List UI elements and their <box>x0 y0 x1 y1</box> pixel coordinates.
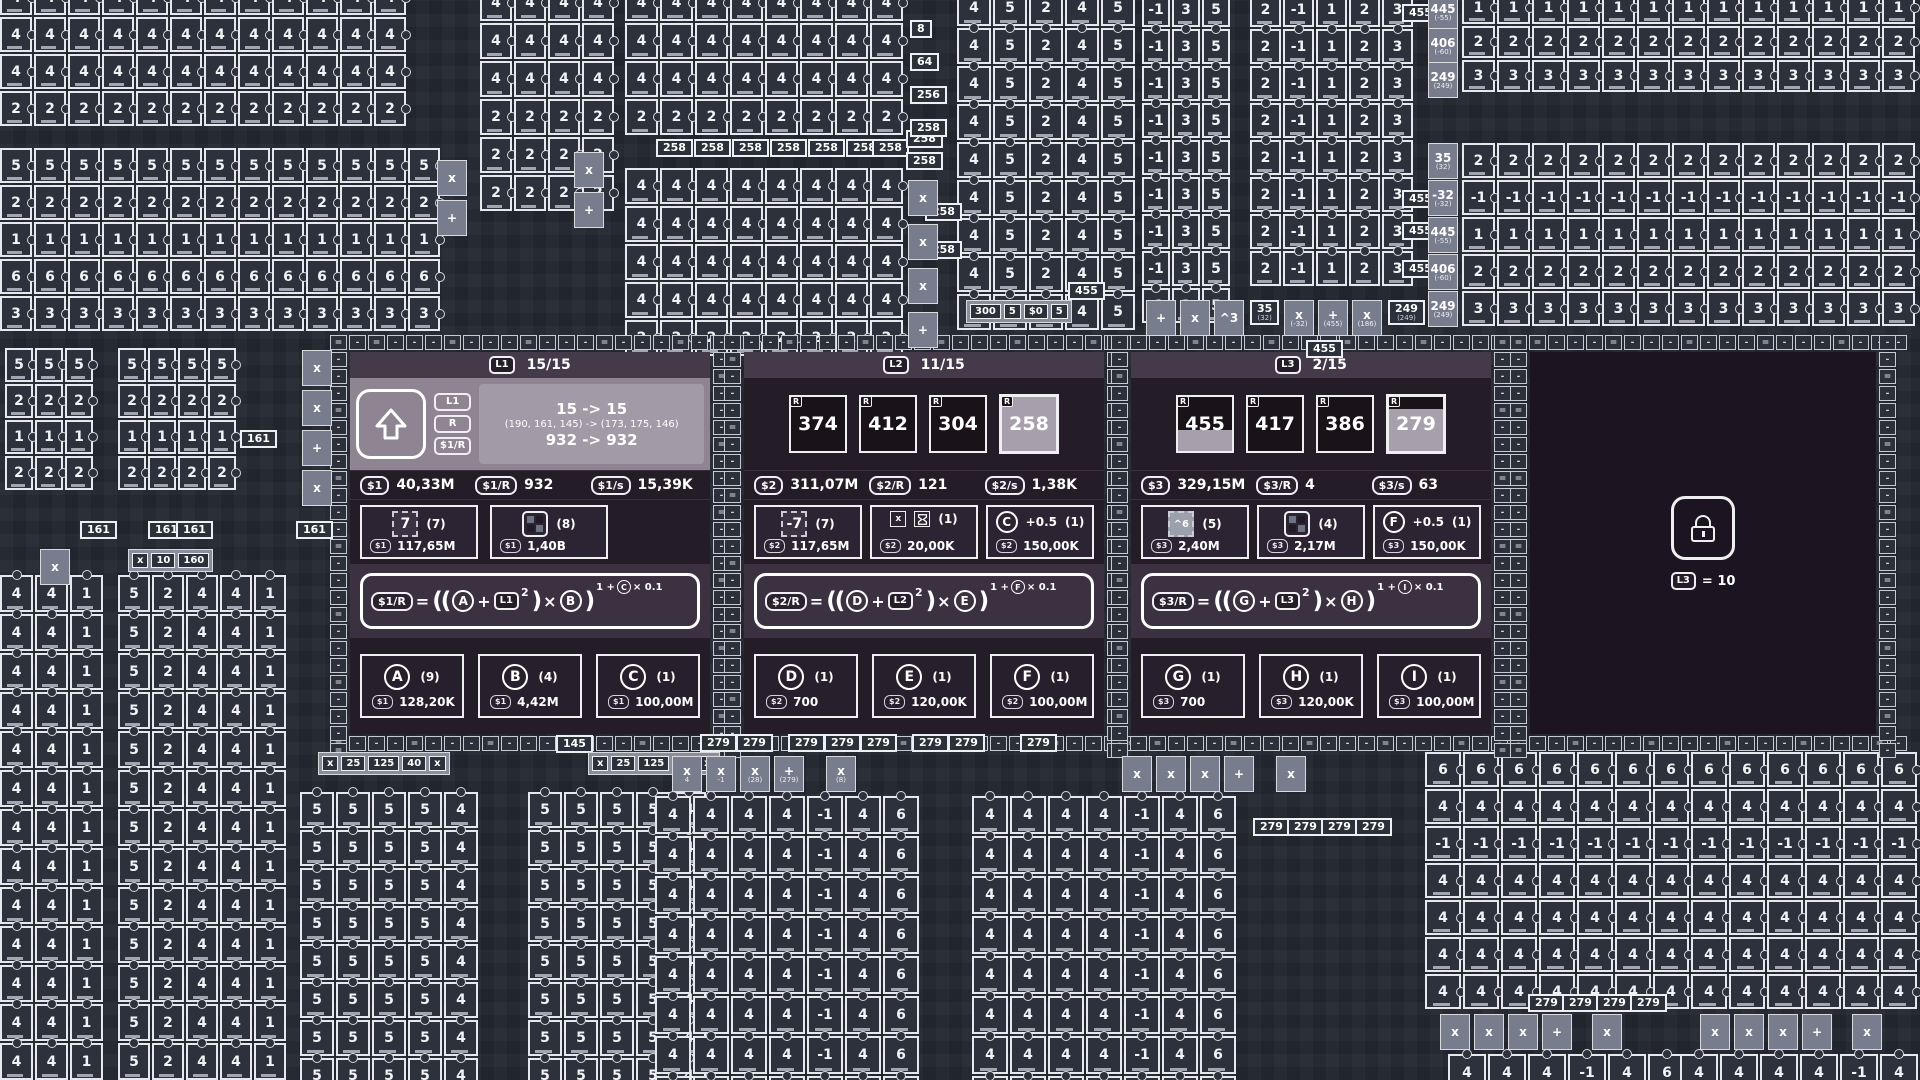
value-chip[interactable]: 279 <box>788 734 825 752</box>
grid-cell[interactable]: 4 <box>102 17 134 52</box>
grid-cell[interactable]: 4 <box>186 926 218 963</box>
grid-cell[interactable]: 3 <box>1602 60 1635 92</box>
grid-cell[interactable]: -1 <box>1283 251 1314 286</box>
grid-cell[interactable]: 2 <box>1742 143 1775 178</box>
grid-cell[interactable]: 4 <box>1086 996 1122 1034</box>
buy-cell-upgrade-button[interactable]: -7 (7) $2 117,65M <box>754 505 862 559</box>
operator-chip[interactable]: + <box>437 200 467 236</box>
grid-cell[interactable]: 4 <box>845 836 881 874</box>
grid-cell[interactable]: 5 <box>528 792 562 828</box>
grid-cell[interactable]: 2 <box>1707 143 1740 178</box>
grid-cell[interactable]: 4 <box>1010 836 1046 874</box>
grid-cell[interactable]: 1 <box>272 222 304 257</box>
grid-cell[interactable]: 2 <box>65 456 93 490</box>
operator-chip[interactable]: x <box>302 390 332 426</box>
grid-cell[interactable]: 4 <box>35 1043 68 1080</box>
grid-cell[interactable]: 1 <box>1707 0 1740 24</box>
grid-cell[interactable]: 3 <box>1777 291 1810 326</box>
grid-cell[interactable]: 5 <box>118 926 150 963</box>
grid-cell[interactable]: 4 <box>238 17 270 52</box>
grid-cell[interactable]: 5 <box>118 348 146 382</box>
grid-cell[interactable]: 4 <box>1065 28 1099 64</box>
grid-cell[interactable]: 2 <box>660 99 693 135</box>
grid-cell[interactable]: 5 <box>118 692 150 729</box>
grid-cell[interactable]: 4 <box>655 1076 691 1080</box>
grid-cell[interactable]: 2 <box>118 456 146 490</box>
grid-cell[interactable]: 4 <box>272 0 304 15</box>
grid-cell[interactable]: -1 <box>1847 180 1880 215</box>
grid-cell[interactable]: -1 <box>1283 29 1314 64</box>
grid-cell[interactable]: 1 <box>68 222 100 257</box>
grid-cell[interactable]: 5 <box>374 148 406 183</box>
grid-cell[interactable]: 1 <box>1316 214 1347 249</box>
grid-cell[interactable]: 4 <box>0 887 33 924</box>
grid-cell[interactable]: 5 <box>118 770 150 807</box>
grid-cell[interactable]: 5 <box>336 830 370 866</box>
grid-cell[interactable]: 5 <box>1101 28 1135 64</box>
grid-cell[interactable]: 4 <box>972 1036 1008 1074</box>
grid-cell[interactable]: 1 <box>70 1043 103 1080</box>
grid-cell[interactable]: 5 <box>238 148 270 183</box>
grid-cell[interactable]: 5 <box>1202 29 1230 64</box>
grid-cell[interactable]: 2 <box>152 692 184 729</box>
value-chip[interactable]: 161 <box>176 521 213 539</box>
grid-cell[interactable]: 4 <box>204 0 236 15</box>
grid-cell[interactable]: 5 <box>65 348 93 382</box>
r-cell[interactable]: R 412 <box>859 395 917 453</box>
value-chip[interactable]: 258 <box>732 139 769 157</box>
grid-cell[interactable]: 4 <box>769 796 805 834</box>
grid-cell[interactable]: 4 <box>1760 1054 1798 1080</box>
grid-cell[interactable]: 3 <box>1637 291 1670 326</box>
grid-cell[interactable]: 2 <box>1847 254 1880 289</box>
grid-cell[interactable]: 4 <box>835 244 868 280</box>
grid-cell[interactable]: 4 <box>220 614 252 651</box>
grid-cell[interactable]: 3 <box>102 296 134 331</box>
grid-cell[interactable]: 4 <box>660 61 693 97</box>
grid-cell[interactable]: 5 <box>1202 251 1230 286</box>
grid-cell[interactable]: 5 <box>600 906 634 942</box>
operator-chip[interactable]: + <box>302 430 332 466</box>
value-chip[interactable]: 258 <box>910 119 947 137</box>
operator-chip[interactable]: x <box>302 350 332 386</box>
grid-cell[interactable]: 4 <box>136 0 168 15</box>
grid-cell[interactable]: 1 <box>254 926 286 963</box>
grid-cell[interactable]: 2 <box>208 456 236 490</box>
grid-cell[interactable]: 5 <box>528 944 562 980</box>
grid-cell[interactable]: 4 <box>1767 863 1803 898</box>
operator-chip[interactable]: x <box>1474 1014 1504 1050</box>
grid-cell[interactable]: 4 <box>730 206 763 242</box>
value-chip[interactable]: 258 <box>694 139 731 157</box>
grid-cell[interactable]: 4 <box>68 54 100 89</box>
grid-cell[interactable]: 2 <box>1029 28 1063 64</box>
grid-cell[interactable]: 6 <box>1200 1036 1236 1074</box>
grid-cell[interactable]: 1 <box>254 575 286 612</box>
grid-cell[interactable]: 1 <box>1707 217 1740 252</box>
grid-cell[interactable]: -1 <box>1777 180 1810 215</box>
operator-chip[interactable]: x <box>1440 1014 1470 1050</box>
grid-cell[interactable]: 2 <box>0 185 32 220</box>
grid-cell[interactable]: 4 <box>695 0 728 21</box>
grid-cell[interactable]: 4 <box>625 61 658 97</box>
grid-cell[interactable]: -1 <box>1124 836 1160 874</box>
grid-cell[interactable]: 3 <box>1532 60 1565 92</box>
value-chip[interactable]: 64 <box>910 53 939 71</box>
grid-cell[interactable]: 5 <box>993 142 1027 178</box>
grid-cell[interactable]: 4 <box>0 614 33 651</box>
grid-cell[interactable]: 2 <box>1497 143 1530 178</box>
grid-cell[interactable]: 1 <box>70 809 103 846</box>
grid-cell[interactable]: 2 <box>835 99 868 135</box>
grid-cell[interactable]: 3 <box>1172 66 1200 101</box>
grid-cell[interactable]: 4 <box>0 770 33 807</box>
grid-cell[interactable]: 1 <box>254 1043 286 1080</box>
grid-cell[interactable]: -1 <box>1672 180 1705 215</box>
grid-cell[interactable]: 2 <box>1637 143 1670 178</box>
buy-letter-boost-button[interactable]: F +0.5 (1) $3 150,00K <box>1373 505 1481 559</box>
grid-cell[interactable]: 2 <box>1029 256 1063 292</box>
grid-cell[interactable]: -1 <box>1283 214 1314 249</box>
value-chip[interactable]: 279 <box>1528 994 1565 1012</box>
grid-cell[interactable]: -1 <box>1124 996 1160 1034</box>
grid-cell[interactable]: -1 <box>1637 180 1670 215</box>
grid-cell[interactable]: 4 <box>340 54 372 89</box>
grid-cell[interactable]: -1 <box>1568 1054 1606 1080</box>
grid-cell[interactable]: 3 <box>1462 291 1495 326</box>
grid-cell[interactable]: -1 <box>1142 29 1170 64</box>
grid-cell[interactable]: 5 <box>408 906 442 942</box>
grid-cell[interactable]: 4 <box>800 0 833 21</box>
operator-chip[interactable]: + <box>1542 1014 1572 1050</box>
grid-cell[interactable]: 5 <box>336 1058 370 1080</box>
grid-cell[interactable]: 5 <box>1101 142 1135 178</box>
grid-cell[interactable]: 5 <box>372 1020 406 1056</box>
grid-cell[interactable]: 4 <box>835 282 868 318</box>
grid-cell[interactable]: 5 <box>600 982 634 1018</box>
grid-cell[interactable]: 2 <box>870 99 903 135</box>
grid-cell[interactable]: 2 <box>548 99 580 135</box>
grid-cell[interactable]: 4 <box>731 1076 767 1080</box>
grid-cell[interactable]: 5 <box>600 830 634 866</box>
grid-cell[interactable]: 4 <box>655 836 691 874</box>
grid-cell[interactable]: 4 <box>186 848 218 885</box>
grid-cell[interactable]: 5 <box>118 575 150 612</box>
grid-cell[interactable]: 5 <box>564 944 598 980</box>
grid-cell[interactable]: 4 <box>1048 916 1084 954</box>
grid-cell[interactable]: 4 <box>0 17 32 52</box>
grid-cell[interactable]: 5 <box>564 1058 598 1080</box>
value-chip[interactable]: 8 <box>910 20 932 38</box>
grid-cell[interactable]: 1 <box>254 809 286 846</box>
grid-cell[interactable]: 4 <box>1065 104 1099 140</box>
grid-cell[interactable]: 4 <box>186 614 218 651</box>
grid-cell[interactable]: 1 <box>1742 0 1775 24</box>
grid-cell[interactable]: 2 <box>118 384 146 418</box>
grid-cell[interactable]: 1 <box>70 1004 103 1041</box>
grid-cell[interactable]: 2 <box>1777 26 1810 58</box>
machine-chip-bar[interactable]: x2512540x <box>318 752 450 775</box>
operator-chip[interactable]: 406(-60) <box>1428 28 1458 64</box>
grid-cell[interactable]: 4 <box>730 61 763 97</box>
grid-cell[interactable]: 5 <box>564 830 598 866</box>
value-chip[interactable]: 258 <box>906 152 943 170</box>
grid-cell[interactable]: 4 <box>480 23 512 59</box>
grid-cell[interactable]: 4 <box>660 168 693 204</box>
grid-cell[interactable]: 3 <box>170 296 202 331</box>
grid-cell[interactable]: 4 <box>870 244 903 280</box>
grid-cell[interactable]: -1 <box>807 1076 843 1080</box>
grid-cell[interactable]: 4 <box>1805 863 1841 898</box>
letter-i-upgrade-button[interactable]: I (1) $3 100,00M <box>1377 654 1481 718</box>
grid-cell[interactable]: 6 <box>68 259 100 294</box>
grid-cell[interactable]: 5 <box>1202 66 1230 101</box>
value-chip[interactable]: 279 <box>1020 734 1057 752</box>
grid-cell[interactable]: 4 <box>695 168 728 204</box>
grid-cell[interactable]: 2 <box>480 137 512 173</box>
grid-cell[interactable]: 1 <box>70 731 103 768</box>
grid-cell[interactable]: 4 <box>1162 1076 1198 1080</box>
grid-cell[interactable]: 4 <box>34 0 66 15</box>
grid-cell[interactable]: 4 <box>660 282 693 318</box>
grid-cell[interactable]: 2 <box>1567 254 1600 289</box>
grid-cell[interactable]: 5 <box>336 982 370 1018</box>
buy-cell-upgrade-button[interactable]: 7 (7) $1 117,65M <box>360 505 478 559</box>
r-cell-selected[interactable]: R 279 <box>1386 394 1446 454</box>
grid-cell[interactable]: 3 <box>374 296 406 331</box>
grid-cell[interactable]: 4 <box>1162 956 1198 994</box>
operator-chip[interactable]: x <box>1734 1014 1764 1050</box>
grid-cell[interactable]: 2 <box>152 926 184 963</box>
grid-cell[interactable]: -1 <box>807 916 843 954</box>
grid-cell[interactable]: 3 <box>1382 66 1413 101</box>
grid-cell[interactable]: 5 <box>372 792 406 828</box>
grid-cell[interactable]: 4 <box>220 809 252 846</box>
grid-cell[interactable]: 4 <box>845 1036 881 1074</box>
grid-cell[interactable]: 4 <box>186 887 218 924</box>
grid-cell[interactable]: 4 <box>0 1043 33 1080</box>
grid-cell[interactable]: 4 <box>730 168 763 204</box>
grid-cell[interactable]: 4 <box>186 809 218 846</box>
grid-cell[interactable]: 2 <box>1707 26 1740 58</box>
grid-cell[interactable]: 1 <box>148 420 176 454</box>
grid-cell[interactable]: 2 <box>1742 26 1775 58</box>
r-cell[interactable]: R 304 <box>929 395 987 453</box>
grid-cell[interactable]: 1 <box>1316 0 1347 27</box>
grid-cell[interactable]: 4 <box>0 653 33 690</box>
grid-cell[interactable]: 1 <box>1316 29 1347 64</box>
grid-cell[interactable]: 5 <box>118 965 150 1002</box>
grid-cell[interactable]: 2 <box>625 99 658 135</box>
grid-cell[interactable]: -1 <box>1283 140 1314 175</box>
grid-cell[interactable]: 5 <box>34 148 66 183</box>
grid-cell[interactable]: 4 <box>220 653 252 690</box>
grid-cell[interactable]: 4 <box>800 244 833 280</box>
grid-cell[interactable]: 4 <box>660 244 693 280</box>
grid-cell[interactable]: 4 <box>800 23 833 59</box>
grid-cell[interactable]: 4 <box>1010 916 1046 954</box>
grid-cell[interactable]: 4 <box>272 54 304 89</box>
grid-cell[interactable]: 4 <box>220 926 252 963</box>
r-cell[interactable]: R 417 <box>1246 395 1304 453</box>
grid-cell[interactable]: 1 <box>70 653 103 690</box>
operator-chip[interactable]: ^3 <box>1214 300 1244 336</box>
grid-cell[interactable]: 5 <box>300 906 334 942</box>
grid-cell[interactable]: 5 <box>1101 256 1135 292</box>
grid-cell[interactable]: 4 <box>1577 863 1613 898</box>
grid-cell[interactable]: 4 <box>35 692 68 729</box>
grid-cell[interactable]: 4 <box>1653 937 1689 972</box>
grid-cell[interactable]: 4 <box>1653 789 1689 824</box>
grid-cell[interactable]: 1 <box>1316 251 1347 286</box>
grid-cell[interactable]: 2 <box>1250 0 1281 27</box>
grid-cell[interactable]: -1 <box>1142 103 1170 138</box>
grid-cell[interactable]: 3 <box>1847 60 1880 92</box>
grid-cell[interactable]: 6 <box>1843 752 1879 787</box>
grid-cell[interactable]: 4 <box>1448 1054 1486 1080</box>
grid-cell[interactable]: 2 <box>208 384 236 418</box>
grid-cell[interactable]: 2 <box>1497 254 1530 289</box>
grid-cell[interactable]: -1 <box>1615 826 1651 861</box>
grid-cell[interactable]: 4 <box>660 0 693 21</box>
grid-cell[interactable]: 1 <box>70 887 103 924</box>
grid-cell[interactable]: 4 <box>731 1036 767 1074</box>
grid-cell[interactable]: -1 <box>1142 251 1170 286</box>
grid-cell[interactable]: 2 <box>1882 254 1915 289</box>
grid-cell[interactable]: 3 <box>1172 29 1200 64</box>
grid-cell[interactable]: 2 <box>374 91 406 126</box>
grid-cell[interactable]: 4 <box>769 956 805 994</box>
grid-cell[interactable]: 2 <box>178 456 206 490</box>
grid-cell[interactable]: 4 <box>731 836 767 874</box>
grid-cell[interactable]: 5 <box>336 906 370 942</box>
grid-cell[interactable]: 4 <box>238 54 270 89</box>
grid-cell[interactable]: 4 <box>731 916 767 954</box>
grid-cell[interactable]: 2 <box>68 91 100 126</box>
grid-cell[interactable]: 4 <box>220 887 252 924</box>
grid-cell[interactable]: 4 <box>102 0 134 15</box>
grid-cell[interactable]: 4 <box>1501 863 1537 898</box>
grid-cell[interactable]: 4 <box>0 848 33 885</box>
grid-cell[interactable]: 2 <box>1349 103 1380 138</box>
grid-cell[interactable]: 4 <box>1086 796 1122 834</box>
grid-cell[interactable]: 4 <box>1691 900 1727 935</box>
grid-cell[interactable]: 2 <box>1532 26 1565 58</box>
grid-cell[interactable]: 2 <box>35 456 63 490</box>
grid-cell[interactable]: -1 <box>1124 916 1160 954</box>
grid-cell[interactable]: 4 <box>444 792 478 828</box>
grid-cell[interactable]: 4 <box>769 1076 805 1080</box>
grid-cell[interactable]: 5 <box>1101 218 1135 254</box>
grid-cell[interactable]: 3 <box>1567 60 1600 92</box>
grid-cell[interactable]: 3 <box>1172 103 1200 138</box>
grid-cell[interactable]: -1 <box>807 996 843 1034</box>
grid-cell[interactable]: 4 <box>480 61 512 97</box>
grid-cell[interactable]: 1 <box>1812 217 1845 252</box>
grid-cell[interactable]: 1 <box>1847 217 1880 252</box>
grid-cell[interactable]: 3 <box>1707 291 1740 326</box>
grid-cell[interactable]: 4 <box>1010 876 1046 914</box>
grid-cell[interactable]: 4 <box>220 770 252 807</box>
grid-cell[interactable]: 4 <box>1843 900 1879 935</box>
grid-cell[interactable]: 4 <box>204 17 236 52</box>
buy-grid-upgrade-button[interactable]: (8) $1 1,40B <box>490 505 608 559</box>
grid-cell[interactable]: 1 <box>70 575 103 612</box>
grid-cell[interactable]: 4 <box>1691 974 1727 1009</box>
grid-cell[interactable]: 1 <box>254 848 286 885</box>
grid-cell[interactable]: 4 <box>695 282 728 318</box>
grid-cell[interactable]: 4 <box>845 956 881 994</box>
grid-cell[interactable]: 3 <box>1777 60 1810 92</box>
grid-cell[interactable]: 4 <box>1048 796 1084 834</box>
grid-cell[interactable]: 2 <box>102 185 134 220</box>
grid-cell[interactable]: -1 <box>1539 826 1575 861</box>
grid-cell[interactable]: 4 <box>1162 836 1198 874</box>
operator-chip[interactable]: x <box>1122 756 1152 792</box>
grid-cell[interactable]: 1 <box>204 222 236 257</box>
grid-cell[interactable]: 2 <box>35 384 63 418</box>
value-chip[interactable]: 161 <box>240 430 277 448</box>
grid-cell[interactable]: 4 <box>625 244 658 280</box>
grid-cell[interactable]: 4 <box>972 876 1008 914</box>
grid-cell[interactable]: 4 <box>660 206 693 242</box>
grid-cell[interactable]: 4 <box>444 1058 478 1080</box>
r-cell[interactable]: R 455 <box>1176 395 1234 453</box>
grid-cell[interactable]: 4 <box>765 244 798 280</box>
grid-cell[interactable]: 4 <box>1881 789 1917 824</box>
grid-cell[interactable]: 2 <box>1349 29 1380 64</box>
grid-cell[interactable]: 4 <box>625 168 658 204</box>
grid-cell[interactable]: -1 <box>1602 180 1635 215</box>
grid-cell[interactable]: 4 <box>800 206 833 242</box>
grid-cell[interactable]: 5 <box>300 868 334 904</box>
grid-cell[interactable]: 3 <box>1882 60 1915 92</box>
grid-cell[interactable]: 4 <box>1501 900 1537 935</box>
grid-cell[interactable]: 6 <box>1653 752 1689 787</box>
grid-cell[interactable]: 1 <box>1637 0 1670 24</box>
grid-cell[interactable]: 2 <box>306 185 338 220</box>
grid-cell[interactable]: 1 <box>170 222 202 257</box>
grid-cell[interactable]: 4 <box>1048 996 1084 1034</box>
grid-cell[interactable]: 6 <box>1615 752 1651 787</box>
grid-cell[interactable]: 2 <box>170 185 202 220</box>
value-chip[interactable]: 35(32) <box>1250 300 1279 325</box>
grid-cell[interactable]: 4 <box>186 653 218 690</box>
grid-cell[interactable]: 2 <box>480 99 512 135</box>
grid-cell[interactable]: 5 <box>300 792 334 828</box>
grid-cell[interactable]: 4 <box>1881 937 1917 972</box>
grid-cell[interactable]: -1 <box>1812 180 1845 215</box>
grid-cell[interactable]: 2 <box>1029 180 1063 216</box>
grid-cell[interactable]: 4 <box>769 1036 805 1074</box>
grid-cell[interactable]: 4 <box>35 731 68 768</box>
grid-cell[interactable]: 4 <box>35 770 68 807</box>
grid-cell[interactable]: 4 <box>0 692 33 729</box>
grid-cell[interactable]: 4 <box>220 1043 252 1080</box>
grid-cell[interactable]: 4 <box>870 0 903 21</box>
grid-cell[interactable]: 4 <box>693 916 729 954</box>
grid-cell[interactable]: 4 <box>765 61 798 97</box>
grid-cell[interactable]: 5 <box>528 906 562 942</box>
grid-cell[interactable]: 2 <box>1250 66 1281 101</box>
grid-cell[interactable]: 1 <box>254 965 286 1002</box>
grid-cell[interactable]: 5 <box>170 148 202 183</box>
grid-cell[interactable]: 2 <box>1672 143 1705 178</box>
grid-cell[interactable]: 4 <box>220 575 252 612</box>
grid-cell[interactable]: 1 <box>1316 103 1347 138</box>
grid-cell[interactable]: 6 <box>1577 752 1613 787</box>
grid-cell[interactable]: 2 <box>1250 103 1281 138</box>
